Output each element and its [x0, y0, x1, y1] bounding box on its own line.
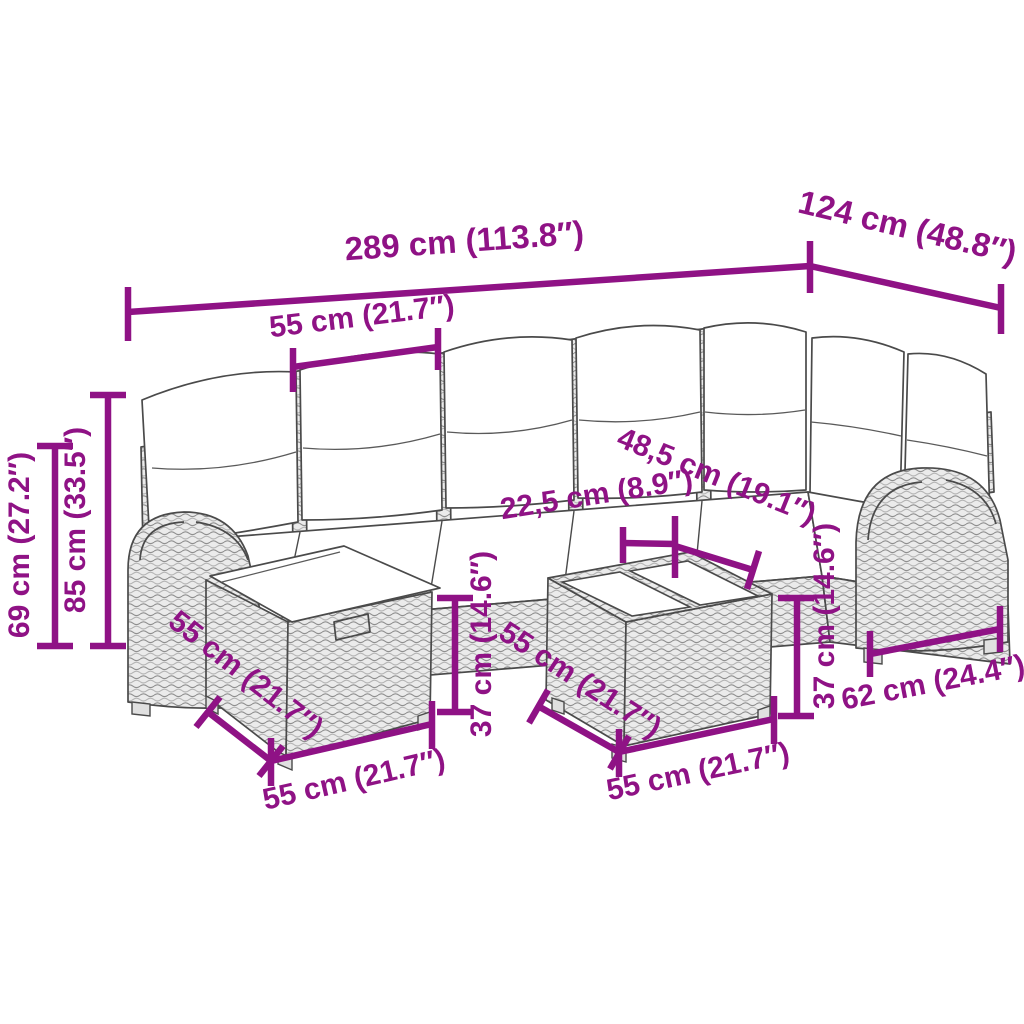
dimension-label-right-section-width: 124 cm (48.8″)	[795, 183, 1021, 271]
dimension-label-ottoman-height: 37 cm (14.6″)	[465, 551, 498, 737]
dimension-label-total-width: 289 cm (113.8″)	[343, 214, 585, 268]
diagram-canvas: 289 cm (113.8″) 124 cm (48.8″) 55 cm (21…	[0, 0, 1024, 1024]
dimension-label-backrest-height: 85 cm (33.5″)	[59, 427, 92, 613]
dimension-label-table-height: 37 cm (14.6″)	[808, 523, 841, 709]
dimension-total-width: 289 cm (113.8″)	[128, 214, 810, 341]
dimension-label-armrest-height: 69 cm (27.2″)	[3, 452, 36, 638]
dimension-right-section-width: 124 cm (48.8″)	[795, 183, 1021, 334]
furniture-dimension-diagram: 289 cm (113.8″) 124 cm (48.8″) 55 cm (21…	[0, 0, 1024, 1024]
dimension-backrest-height: 85 cm (33.5″)	[59, 395, 126, 646]
